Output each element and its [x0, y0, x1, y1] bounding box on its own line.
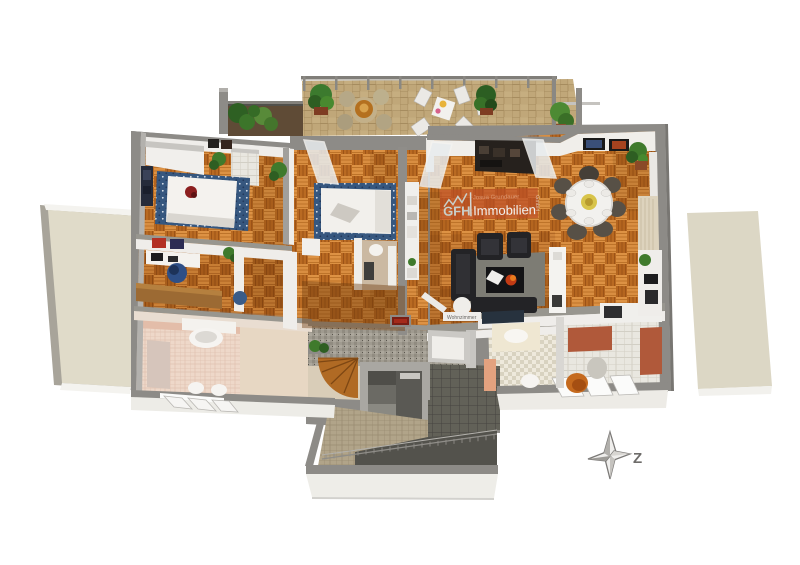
svg-text:Wohnzimmer: Wohnzimmer — [447, 315, 477, 321]
svg-text:Immobilien: Immobilien — [473, 202, 536, 218]
svg-text:Z: Z — [633, 450, 642, 467]
svg-text:GmbH: GmbH — [534, 195, 540, 211]
svg-text:Josua Grundauer: Josua Grundauer — [473, 194, 519, 201]
svg-text:GFH: GFH — [443, 203, 471, 218]
